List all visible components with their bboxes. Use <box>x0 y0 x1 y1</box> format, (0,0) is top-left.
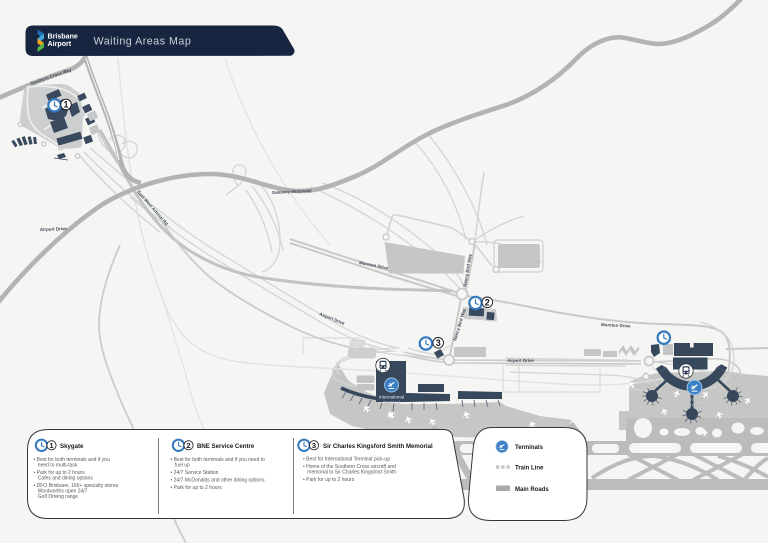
svg-text:Cafes and dining options: Cafes and dining options <box>38 476 94 482</box>
svg-text:need to multi-task: need to multi-task <box>38 463 78 469</box>
svg-text:Terminal: Terminal <box>685 403 702 408</box>
svg-text:3: 3 <box>436 338 441 348</box>
svg-text:International: International <box>379 395 404 400</box>
svg-text:2: 2 <box>485 297 490 307</box>
svg-text:Main Roads: Main Roads <box>515 487 549 493</box>
svg-text:memorial to Sir Charles Kingsf: memorial to Sir Charles Kingsford Smith <box>307 470 396 476</box>
svg-text:3: 3 <box>312 441 316 450</box>
svg-text:Waiting Areas Map: Waiting Areas Map <box>94 36 192 48</box>
svg-text:• Best for International Termi: • Best for International Terminal pick-u… <box>303 457 390 463</box>
svg-text:fuel up: fuel up <box>175 463 190 469</box>
svg-text:Domestic: Domestic <box>684 397 704 402</box>
svg-text:BNE Service Centre: BNE Service Centre <box>197 443 255 450</box>
svg-text:1: 1 <box>63 100 68 110</box>
svg-text:• 24/7 Service Station: • 24/7 Service Station <box>171 470 219 476</box>
svg-text:Terminals: Terminals <box>515 445 544 451</box>
svg-text:Train Line: Train Line <box>515 465 544 471</box>
svg-text:Airport Drive: Airport Drive <box>507 358 534 363</box>
svg-text:Airport: Airport <box>48 40 72 48</box>
svg-text:Airport Drive: Airport Drive <box>40 226 68 232</box>
svg-text:Skygate: Skygate <box>60 443 84 450</box>
svg-text:• Park for up to 2 hours: • Park for up to 2 hours <box>303 477 355 483</box>
svg-text:Terminal: Terminal <box>383 400 400 405</box>
svg-text:2: 2 <box>186 441 190 450</box>
svg-text:• 24/7 McDonalds and other din: • 24/7 McDonalds and other dining option… <box>171 478 266 484</box>
svg-text:Golf Driving range: Golf Driving range <box>38 494 79 500</box>
svg-text:Sir Charles Kingsford Smith Me: Sir Charles Kingsford Smith Memorial <box>323 443 433 450</box>
svg-text:• Park for up to 2 hours: • Park for up to 2 hours <box>171 485 223 491</box>
